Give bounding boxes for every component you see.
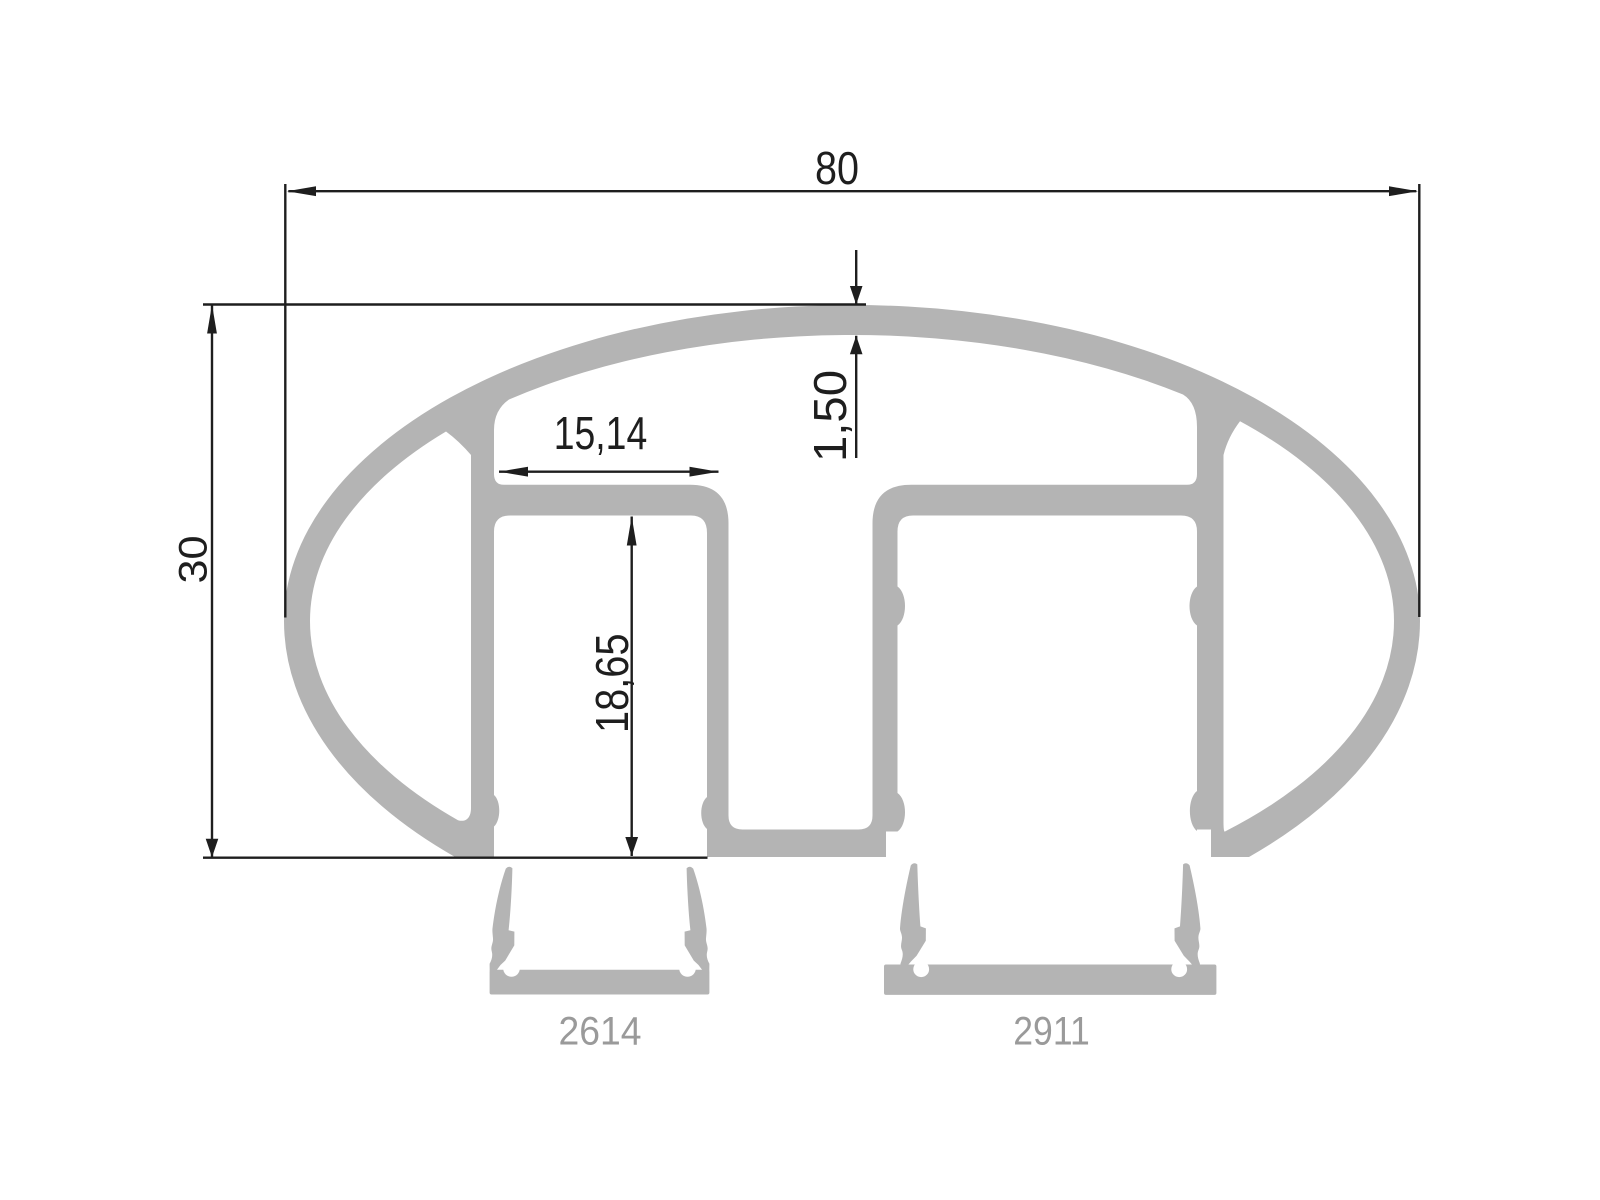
svg-text:1,50: 1,50 [804,370,856,462]
svg-text:2911: 2911 [1013,1010,1090,1054]
svg-text:18,65: 18,65 [586,634,638,734]
svg-text:80: 80 [815,142,859,194]
svg-text:15,14: 15,14 [554,407,648,459]
svg-text:30: 30 [171,536,215,584]
svg-text:2614: 2614 [559,1010,642,1054]
